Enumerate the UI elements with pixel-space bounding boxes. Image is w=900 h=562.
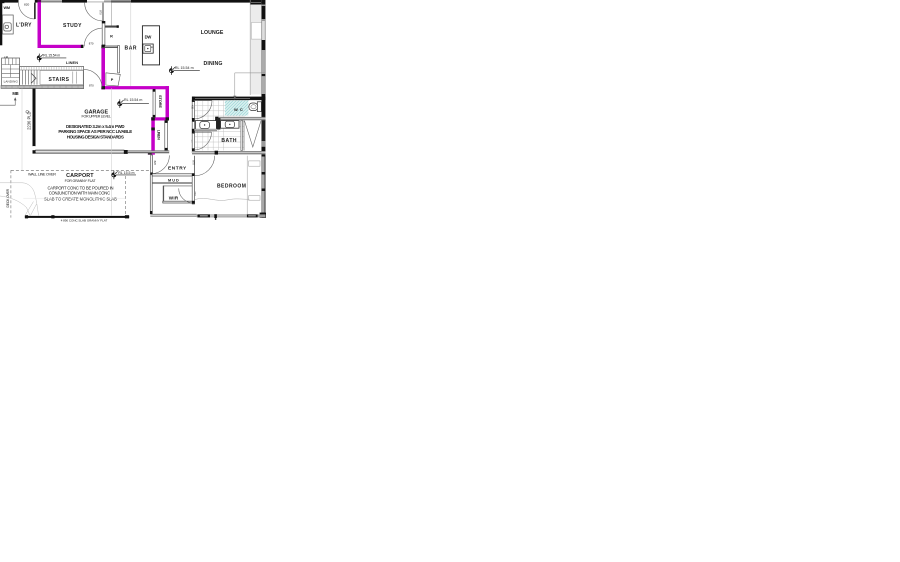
svg-text:DINING: DINING	[203, 61, 223, 67]
svg-text:P: P	[111, 78, 114, 82]
svg-text:870: 870	[89, 83, 94, 87]
svg-text:CARPORT CONC TO BE POURED IN: CARPORT CONC TO BE POURED IN	[47, 185, 113, 190]
svg-text:FOR GRANNY FLAT: FOR GRANNY FLAT	[65, 179, 97, 183]
svg-text:820: 820	[24, 3, 29, 7]
svg-text:WIR: WIR	[169, 196, 179, 201]
svg-text:870: 870	[192, 160, 196, 165]
svg-text:LOUNGE: LOUNGE	[201, 30, 224, 36]
svg-text:DW: DW	[145, 34, 152, 39]
svg-text:LINEN: LINEN	[66, 60, 78, 65]
svg-text:BEDROOM: BEDROOM	[217, 183, 247, 189]
svg-text:RL 15.54 m: RL 15.54 m	[124, 98, 142, 102]
svg-text:SLAB TO CREATE MONOLITHIC SLAB: SLAB TO CREATE MONOLITHIC SLAB	[44, 196, 117, 201]
svg-text:870: 870	[89, 42, 94, 46]
svg-text:FOR UPPER LEVEL: FOR UPPER LEVEL	[82, 114, 111, 118]
svg-text:MUD: MUD	[168, 179, 179, 183]
svg-text:WALL LINE OVER: WALL LINE OVER	[28, 173, 56, 177]
svg-text:LINEN: LINEN	[157, 130, 161, 140]
svg-text:PARKING SPACE AS PER NCC LIVAB: PARKING SPACE AS PER NCC LIVABLE	[58, 129, 132, 134]
svg-text:STAIRS: STAIRS	[49, 77, 70, 83]
svg-text:870: 870	[99, 10, 103, 15]
svg-text:STORE: STORE	[158, 95, 163, 108]
svg-text:R: R	[110, 35, 113, 39]
svg-text:CONJUNCTION WITH MAIN CONC: CONJUNCTION WITH MAIN CONC	[49, 191, 110, 196]
svg-text:RL 15.54 m: RL 15.54 m	[175, 66, 194, 70]
svg-text:2236 PLD: 2236 PLD	[27, 111, 32, 130]
svg-text:RL 15.54 m: RL 15.54 m	[43, 54, 60, 58]
svg-text:STUDY: STUDY	[63, 23, 82, 29]
svg-text:DESIGNATED 3.2m x 5.4m PWD: DESIGNATED 3.2m x 5.4m PWD	[66, 124, 125, 129]
svg-text:LANDING: LANDING	[4, 80, 19, 84]
svg-text:ENTRY: ENTRY	[168, 166, 187, 172]
svg-text:MB: MB	[12, 91, 18, 96]
svg-text:RL 15.5 m: RL 15.5 m	[118, 171, 134, 175]
svg-text:L'DRY: L'DRY	[16, 23, 32, 29]
svg-text:820: 820	[153, 161, 157, 166]
svg-text:HOUSING DESIGN STANDARDS: HOUSING DESIGN STANDARDS	[67, 135, 124, 140]
svg-text:400: 400	[191, 105, 194, 110]
svg-text:BATH: BATH	[221, 138, 237, 144]
svg-text:4 890 CONC SLAB GRANNY FLAT: 4 890 CONC SLAB GRANNY FLAT	[61, 219, 108, 223]
svg-text:WM: WM	[4, 6, 11, 10]
